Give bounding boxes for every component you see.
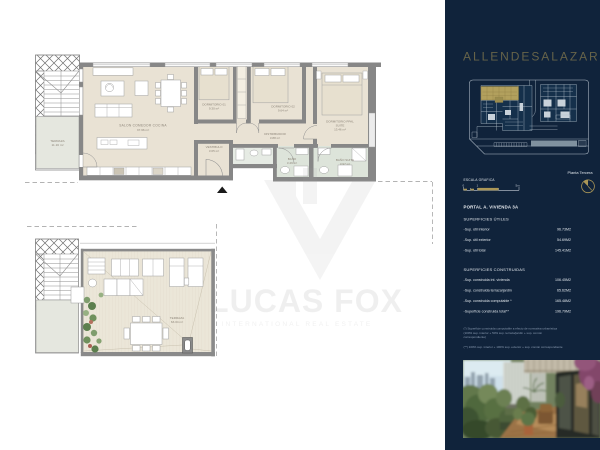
svg-text:-Sup. útil total: -Sup. útil total xyxy=(464,249,486,253)
svg-text:ALLENDESALAZAR: ALLENDESALAZAR xyxy=(463,50,600,64)
svg-text:correspondiente): correspondiente) xyxy=(464,335,487,339)
svg-text:196.79M2: 196.79M2 xyxy=(555,309,571,313)
svg-text:PORTAL A. VIVIENDA 3A: PORTAL A. VIVIENDA 3A xyxy=(464,205,519,210)
svg-text:-Sup. útil interior: -Sup. útil interior xyxy=(464,228,491,232)
svg-text:3.65 m²: 3.65 m² xyxy=(209,149,219,153)
svg-text:LUCAS FOX: LUCAS FOX xyxy=(209,283,403,319)
svg-text:SUPERFICIES ÚTILES: SUPERFICIES ÚTILES xyxy=(464,217,510,222)
svg-text:-Sup. útil exterior: -Sup. útil exterior xyxy=(464,238,492,242)
svg-text:5m: 5m xyxy=(516,184,521,188)
svg-text:165.48M2: 165.48M2 xyxy=(555,299,571,303)
svg-text:3.97 m²: 3.97 m² xyxy=(340,162,350,166)
svg-text:Planta Tercera: Planta Tercera xyxy=(567,170,593,175)
svg-text:-Sup. construida int. vivienda: -Sup. construida int. vivienda xyxy=(464,278,510,282)
svg-text:9.64 m²: 9.64 m² xyxy=(278,109,288,113)
svg-text:SUPERFICIES CONSTRUIDAS: SUPERFICIES CONSTRUIDAS xyxy=(464,267,526,272)
svg-text:9.30 m²: 9.30 m² xyxy=(209,107,219,111)
svg-text:96.73M2: 96.73M2 xyxy=(557,228,571,232)
svg-text:3.88 m²: 3.88 m² xyxy=(270,136,280,140)
svg-text:37.66 m²: 37.66 m² xyxy=(137,128,149,132)
svg-text:106.45M2: 106.45M2 xyxy=(555,278,571,282)
svg-text:13.46 m²: 13.46 m² xyxy=(334,128,346,132)
svg-text:54.69M2: 54.69M2 xyxy=(557,238,571,242)
svg-text:-Sup. construida terraza/jardí: -Sup. construida terraza/jardín xyxy=(464,289,512,293)
svg-text:INTERNATIONAL REAL ESTATE: INTERNATIONAL REAL ESTATE xyxy=(222,321,373,328)
svg-text:63.04 m²: 63.04 m² xyxy=(171,320,183,324)
svg-text:11.16 m²: 11.16 m² xyxy=(52,143,64,147)
svg-text:(**) 100% sup. interior + 100%: (**) 100% sup. interior + 100% sup. exte… xyxy=(464,345,563,349)
svg-text:65.62M2: 65.62M2 xyxy=(557,289,571,293)
svg-text:-Sup. construida computable *: -Sup. construida computable * xyxy=(464,299,513,303)
svg-text:145.41M2: 145.41M2 xyxy=(555,249,571,253)
svg-text:-Superficie construida total**: -Superficie construida total** xyxy=(464,309,510,313)
svg-text:ESCALA GRAFICA: ESCALA GRAFICA xyxy=(464,178,496,182)
svg-text:3.49 m²: 3.49 m² xyxy=(287,161,297,165)
